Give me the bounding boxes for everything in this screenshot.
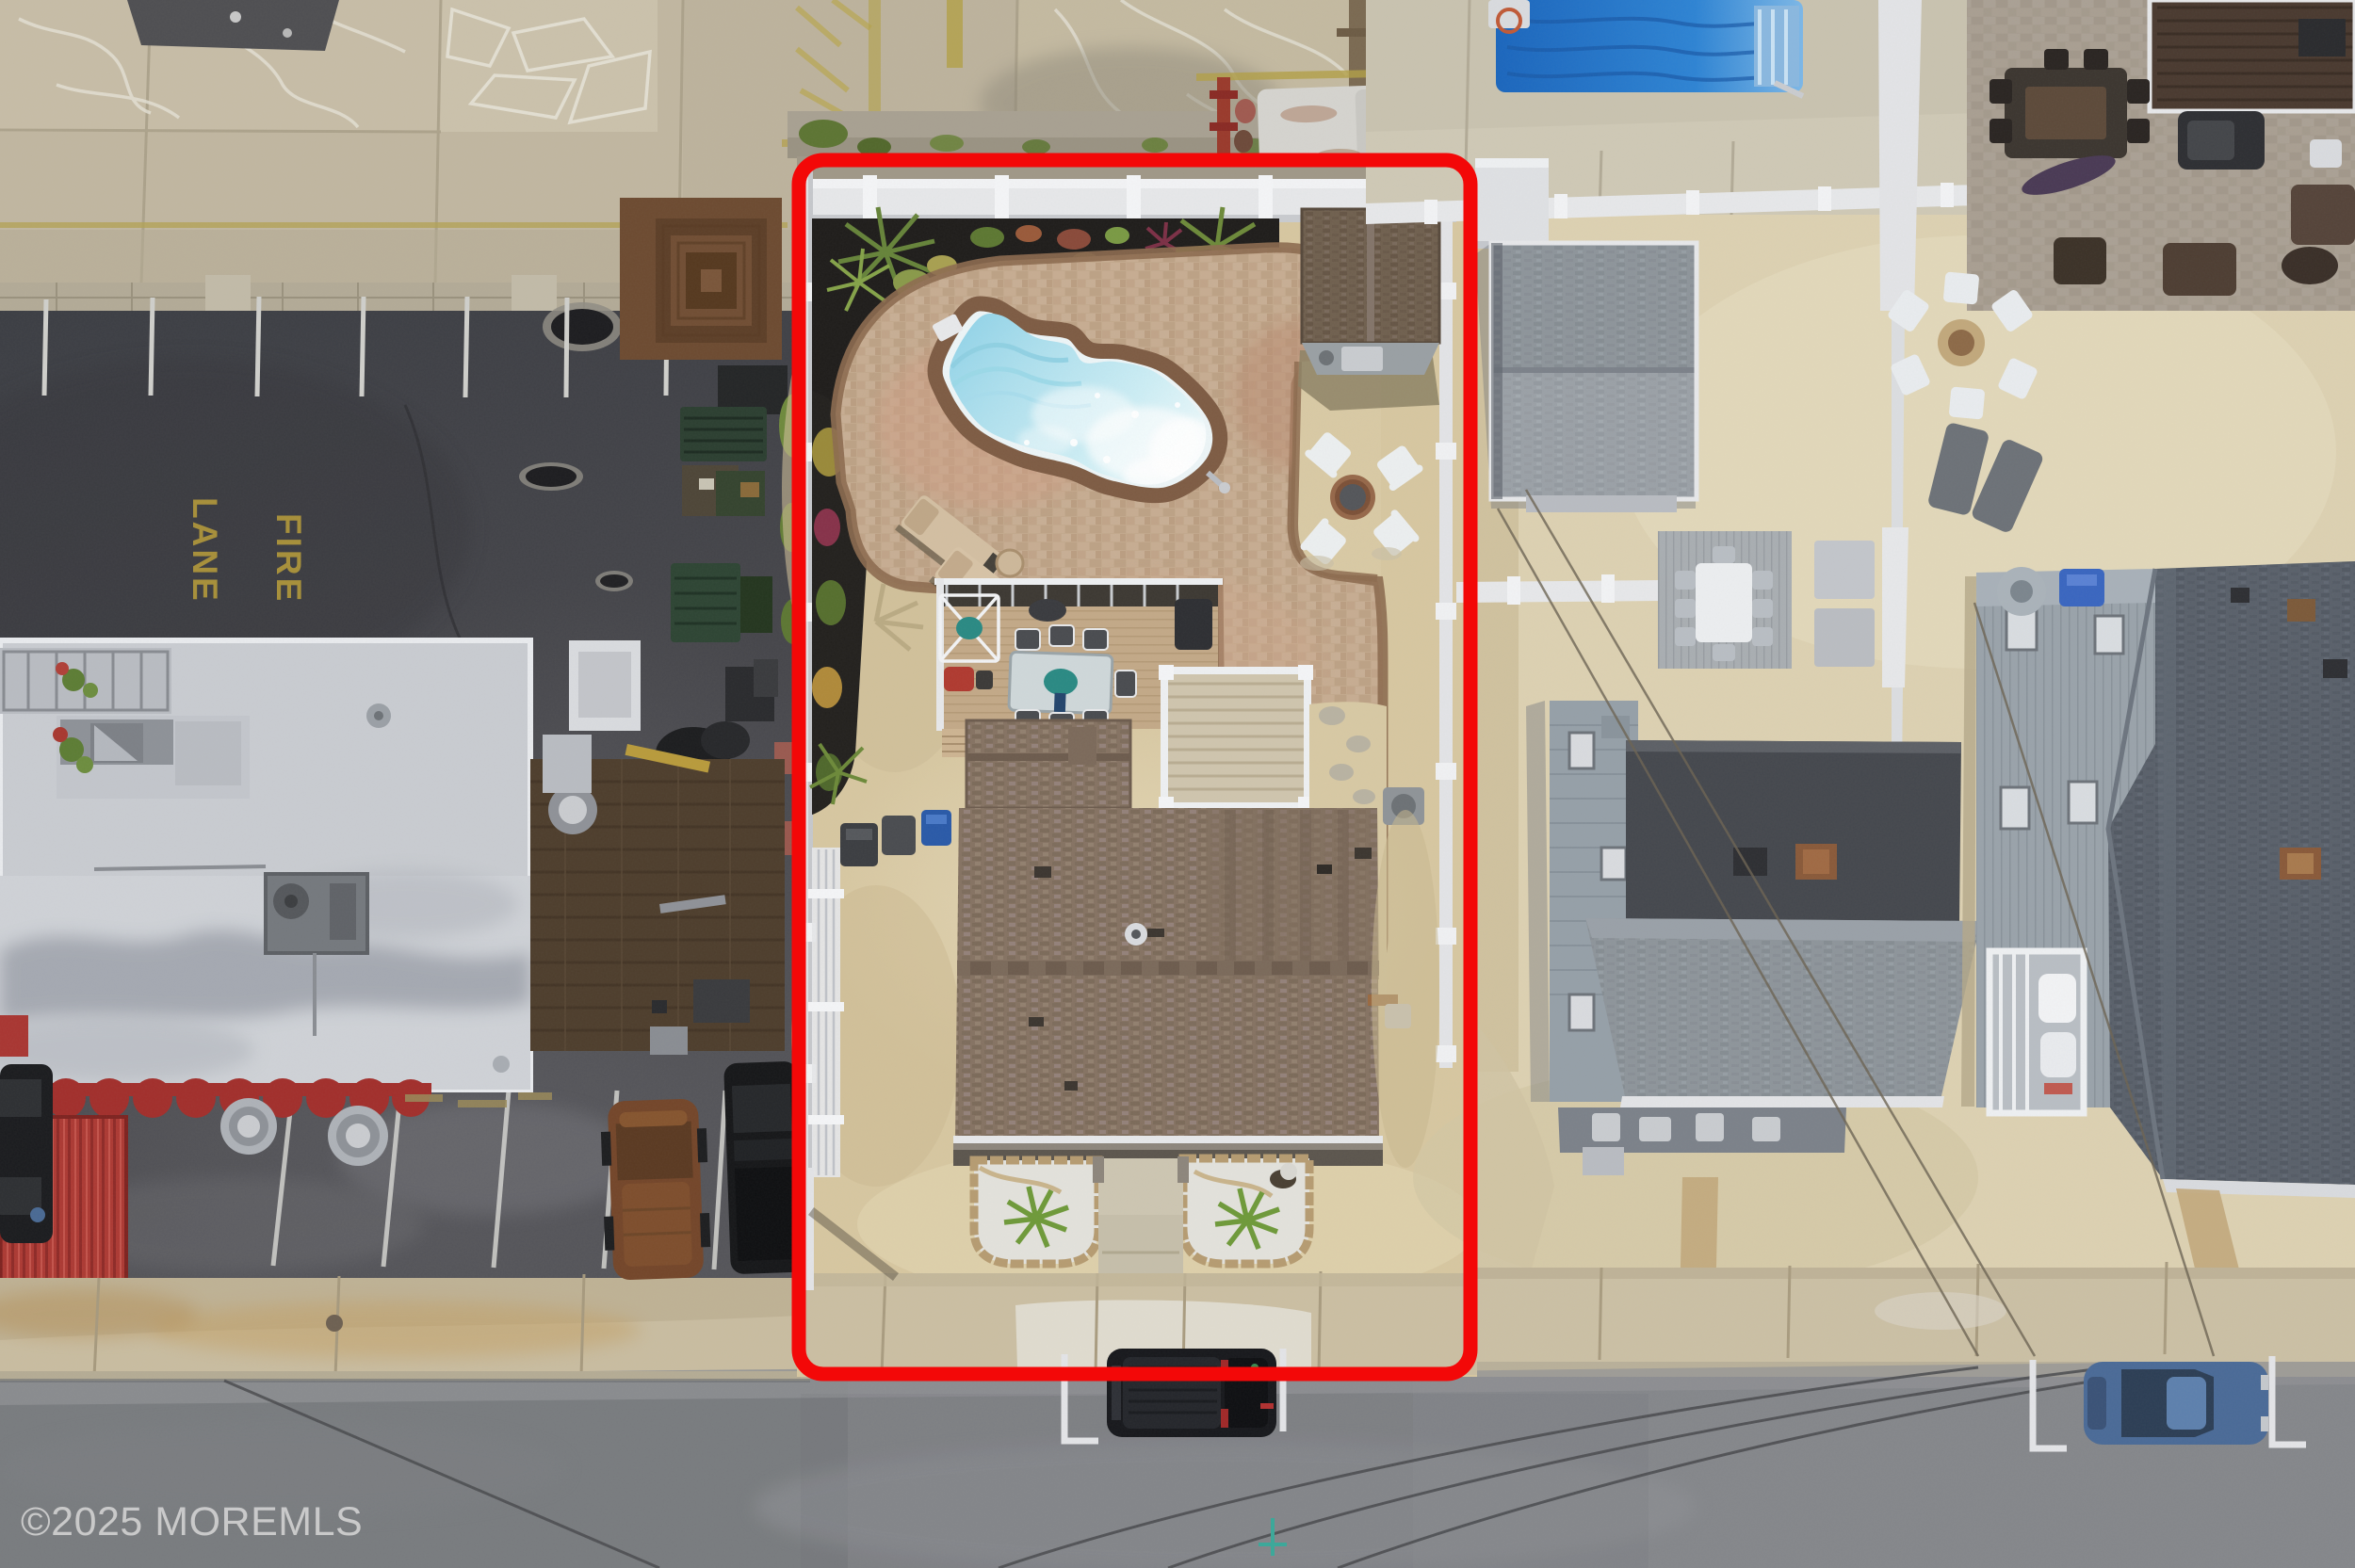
svg-text:©2025 MOREMLS: ©2025 MOREMLS — [21, 1499, 363, 1544]
